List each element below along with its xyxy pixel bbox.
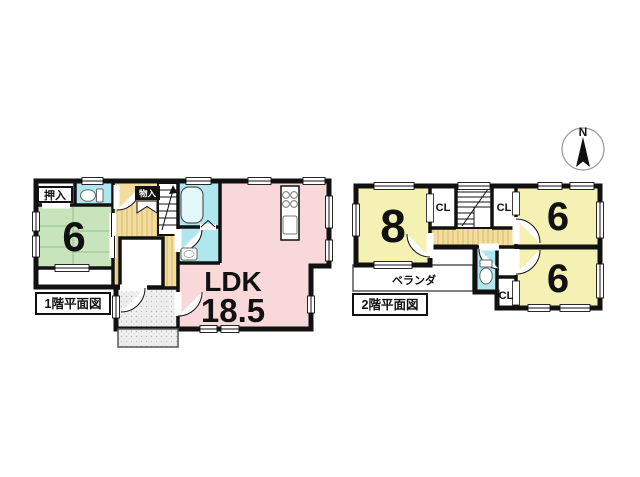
room8-size-label: 8 [380, 200, 406, 252]
room6-top-size-label: 6 [547, 195, 569, 239]
washroom-sink [181, 248, 197, 260]
floor1-caption: 1階平面図 [45, 296, 102, 311]
entrance-cabinet [120, 238, 163, 287]
ldk-size-label: 18.5 [201, 292, 265, 329]
cl-right-label: CL [497, 202, 512, 214]
oshiire-label: 押入 [44, 188, 66, 202]
toilet1-fixture [81, 189, 104, 202]
floor2-caption: 2階平面図 [362, 297, 419, 312]
veranda-label: ベランダ [392, 273, 436, 287]
cl-bottom-label: CL [499, 290, 514, 302]
floor-plan-image: 押入 物入 6 LDK 18.5 1階平面図 [0, 0, 640, 477]
cl-left-label: CL [436, 202, 451, 214]
bathtub [181, 187, 203, 223]
monoire-label: 物入 [139, 189, 157, 199]
floor1-plan: 押入 物入 6 LDK 18.5 1階平面図 [33, 178, 333, 348]
toilet2-fixture [480, 260, 492, 284]
kitchen-counter [281, 186, 299, 240]
floor2-plan: 8 6 6 CL CL CL ベランダ 2階平面図 [353, 183, 604, 316]
stairs-1f [158, 183, 178, 235]
stairs-2f [456, 186, 492, 228]
compass-north-label: N [579, 125, 588, 139]
tatami-size-label: 6 [62, 213, 85, 260]
entrance-porch [118, 329, 178, 347]
compass: N [562, 125, 604, 170]
floor-plan-svg: 押入 物入 6 LDK 18.5 1階平面図 [0, 0, 640, 477]
room6-bottom-size-label: 6 [547, 257, 569, 301]
